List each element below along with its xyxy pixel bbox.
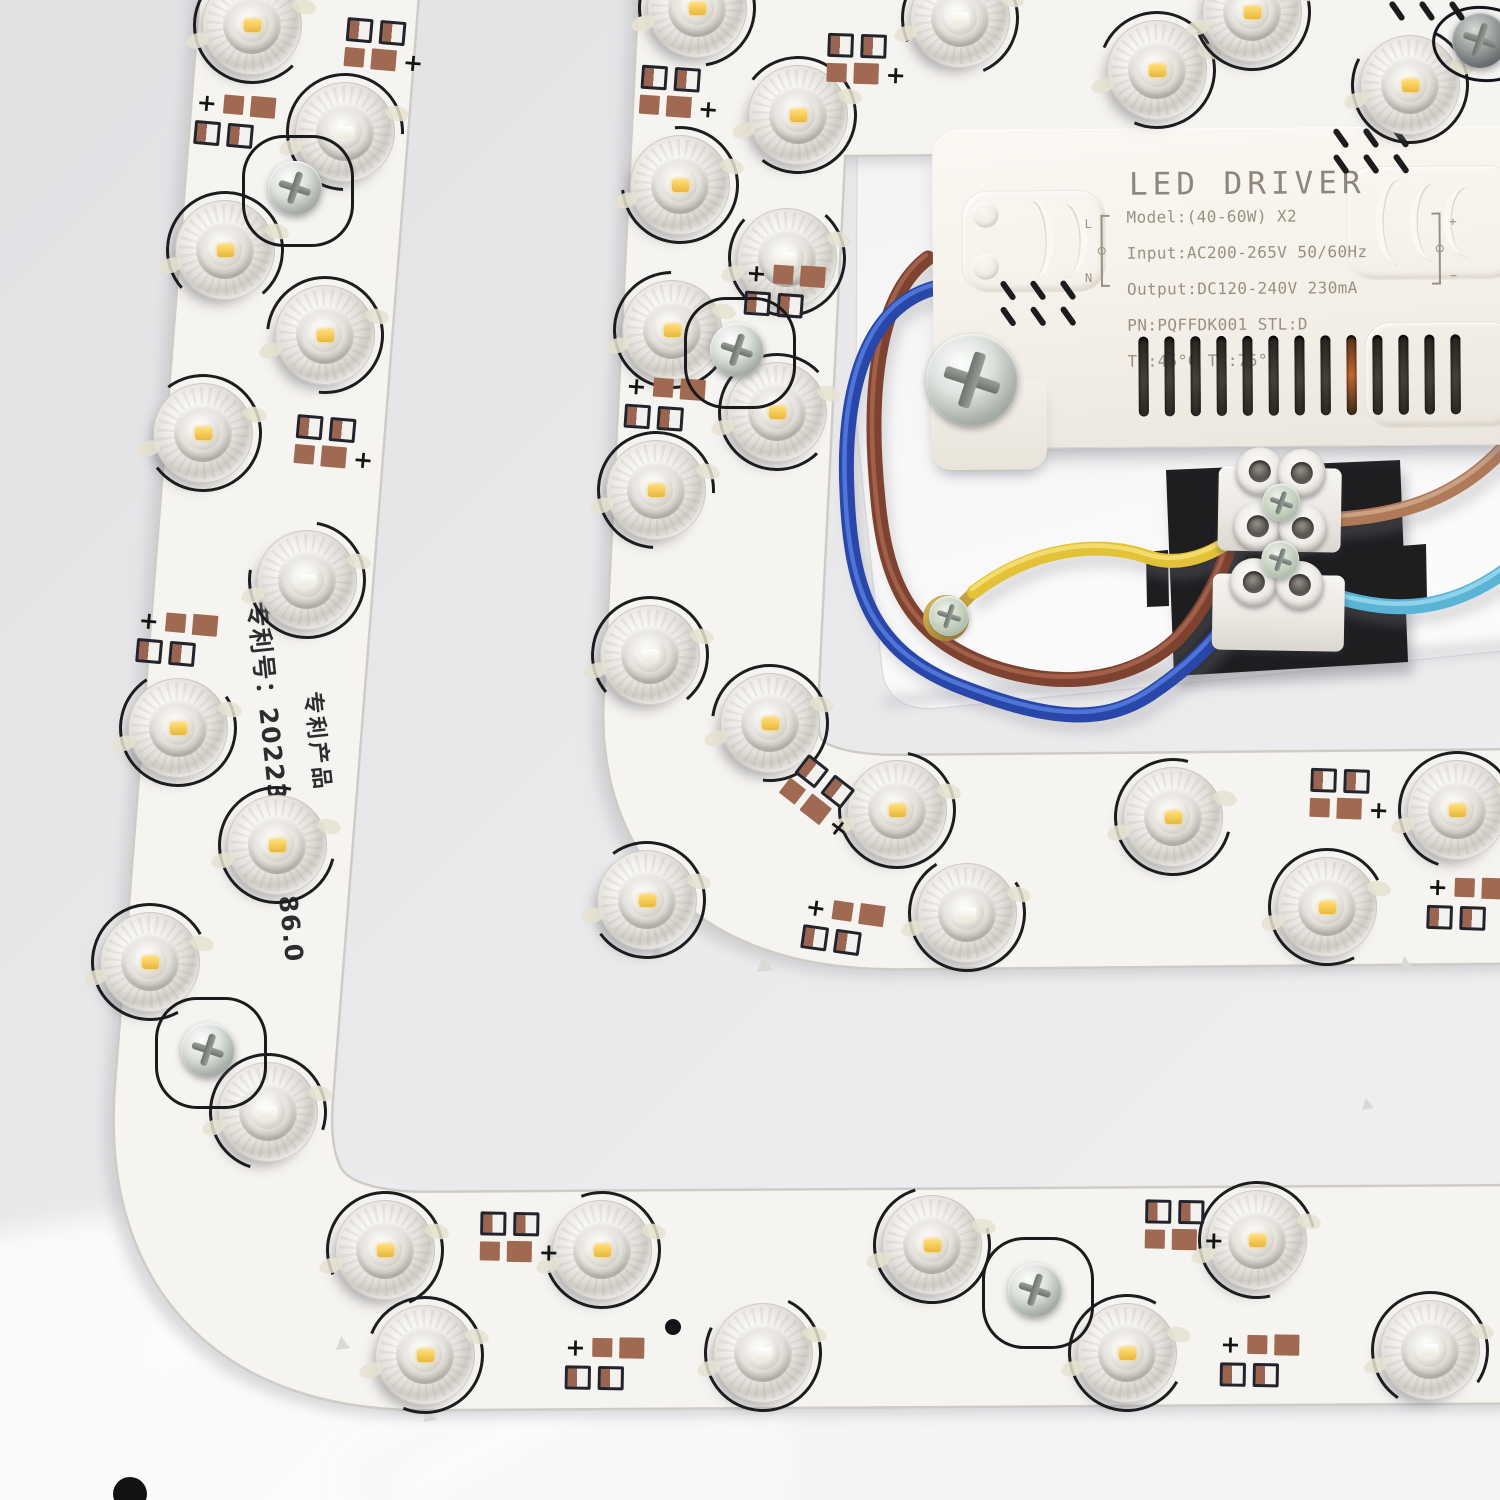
- led-lens: [375, 1305, 475, 1405]
- driver-title: LED DRIVER: [1082, 165, 1412, 203]
- solder-pad-cluster: +: [1144, 1199, 1215, 1260]
- led-lens: [713, 1303, 813, 1403]
- vent-slot: [1320, 335, 1331, 415]
- led-lens: [257, 530, 357, 630]
- solder-pad-cluster: +: [343, 17, 418, 83]
- vent-slot: [1346, 335, 1357, 415]
- driver-input-terminal-diagram: L N: [1100, 215, 1117, 287]
- driver-spec-model: Model:(40-60W) X2: [1126, 207, 1297, 227]
- led-lens: [917, 863, 1017, 963]
- driver-tab-screw: [926, 334, 1018, 426]
- vent-dash: [1332, 128, 1350, 149]
- led-lens: [647, 0, 747, 58]
- led-lens: [910, 0, 1010, 68]
- driver-output-terminal-diagram: + −: [1424, 213, 1441, 285]
- led-ceiling-light-photo: 专利号：202230506086.0 专利产品 LED DRIVER Model…: [0, 0, 1500, 1500]
- led-lens: [882, 1195, 982, 1295]
- led-lens: [202, 0, 302, 75]
- led-lens: [227, 795, 327, 895]
- embossed-arc: [1040, 203, 1088, 277]
- led-driver-box: LED DRIVER Model:(40-60W) X2 Input:AC200…: [932, 126, 1500, 449]
- terminal-l-label: L: [1085, 217, 1092, 231]
- vent-dash: [999, 306, 1017, 327]
- solder-pad-cluster: +: [564, 1336, 635, 1397]
- vent-slot: [1398, 335, 1409, 415]
- embossed-bump: [972, 202, 998, 228]
- led-lens: [100, 912, 200, 1012]
- led-lens: [153, 383, 253, 483]
- led-lens: [1407, 760, 1500, 860]
- led-lens: [552, 1200, 652, 1300]
- vent-slot: [1164, 336, 1175, 416]
- solder-pad-cluster: +: [293, 414, 368, 480]
- led-lens: [600, 605, 700, 705]
- vent-slot: [1138, 337, 1149, 417]
- ground-lug-screw: [929, 596, 969, 636]
- solder-pad-cluster: +: [1219, 1333, 1290, 1394]
- terminal-minus-label: −: [1450, 268, 1457, 282]
- pcb-mounting-screw: [710, 323, 764, 377]
- solder-pad-cluster: +: [623, 375, 697, 440]
- led-lens: [275, 285, 375, 385]
- terminal-block: [1150, 442, 1454, 707]
- solder-pad-cluster: +: [1309, 768, 1381, 830]
- driver-spec-output: Output:DC120-240V 230mA: [1127, 278, 1358, 299]
- led-lens: [1202, 0, 1302, 62]
- led-lens: [606, 440, 706, 540]
- terminal-plus-label: +: [1449, 214, 1456, 228]
- vent-slot: [1190, 336, 1201, 416]
- solder-pad-cluster: +: [799, 895, 877, 964]
- pcb-mounting-screw: [1008, 1263, 1062, 1317]
- led-lens: [1123, 767, 1223, 867]
- vent-slot: [1372, 335, 1383, 415]
- embossed-bump: [973, 254, 999, 280]
- vent-slot: [1450, 334, 1461, 414]
- vent-slot: [1294, 335, 1305, 415]
- led-lens: [847, 760, 947, 860]
- solder-pad-cluster: +: [1426, 876, 1498, 938]
- led-lens: [630, 135, 730, 235]
- driver-spec-input: Input:AC200-265V 50/60Hz: [1127, 242, 1368, 263]
- pcb-mounting-screw: [181, 1023, 235, 1077]
- led-lens: [1380, 1300, 1480, 1400]
- vent-slot: [1268, 336, 1279, 416]
- vent-dash: [1029, 306, 1047, 327]
- led-lens: [1277, 857, 1377, 957]
- driver-spec-pn: PN:PQFFDK001 STL:D: [1127, 314, 1308, 334]
- solder-pad-cluster: +: [479, 1211, 550, 1272]
- driver-vent-slots: [1138, 334, 1479, 418]
- driver-embossed-panel-left: [962, 191, 1105, 292]
- solder-pad-cluster: +: [826, 33, 898, 95]
- vent-slot: [1242, 336, 1253, 416]
- solder-pad-cluster: +: [638, 65, 712, 130]
- led-lens: [597, 850, 697, 950]
- vent-dash: [1059, 305, 1077, 326]
- led-lens: [128, 678, 228, 778]
- vent-slot: [1216, 336, 1227, 416]
- solder-pad-cluster: +: [135, 609, 210, 675]
- terminal-n-label: N: [1085, 271, 1092, 285]
- led-lens: [335, 1200, 435, 1300]
- vent-slot: [1424, 335, 1435, 415]
- pcb-mounting-screw: [268, 161, 322, 215]
- mounting-hole: [665, 1319, 681, 1335]
